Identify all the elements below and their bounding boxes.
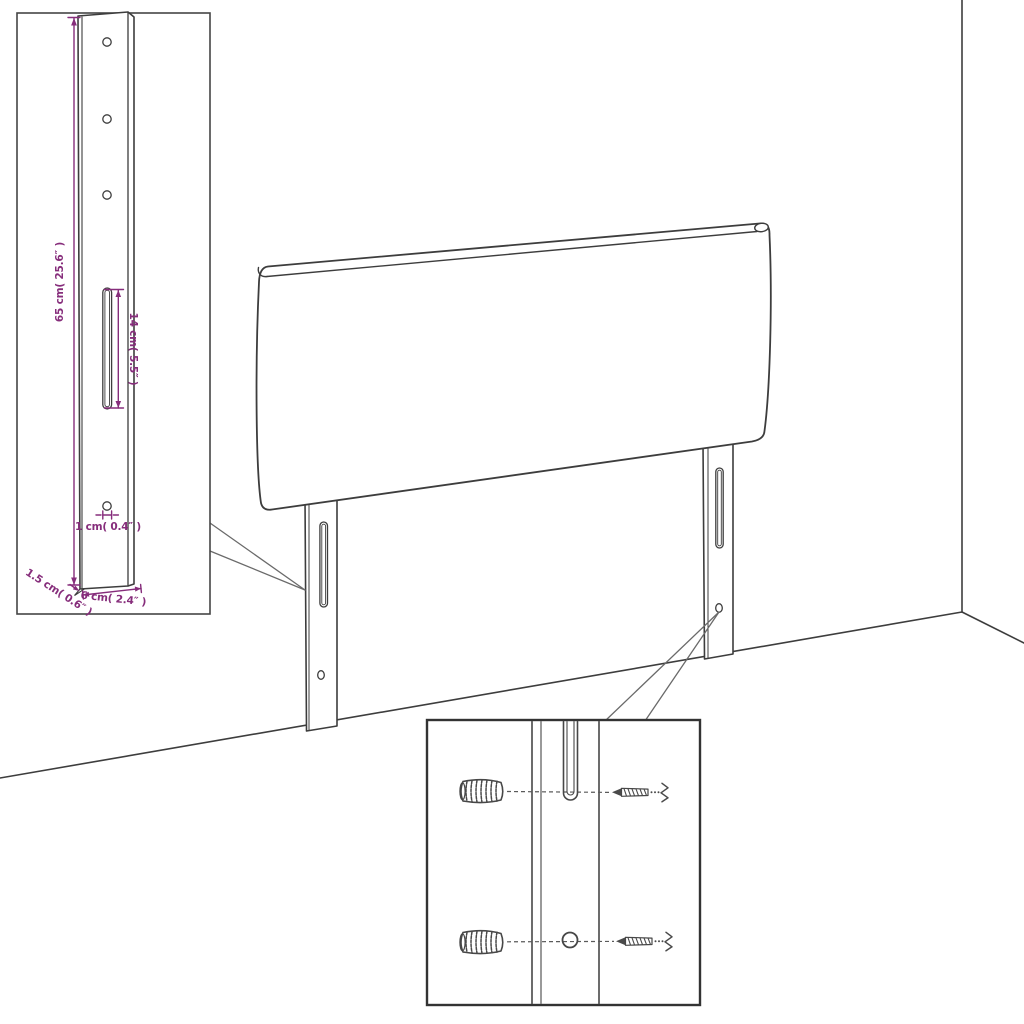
assembly-diagram-page: 65 cm( 25.6″ ) 14 cm( 5.5″ ) 1 cm( 0.4″ … xyxy=(0,0,1024,1024)
detail-hole-top-3 xyxy=(103,191,111,199)
callout-lines-mounting-detail xyxy=(605,612,719,721)
headboard-panel xyxy=(257,223,771,509)
detail-hole-top-2 xyxy=(103,115,111,123)
right-leg-slot xyxy=(716,468,723,548)
dim-slot-label: 14 cm( 5.5″ ) xyxy=(127,312,139,385)
callout-line xyxy=(605,612,719,721)
mounting-detail-inset xyxy=(427,720,700,1005)
dim-height-label: 65 cm( 25.6″ ) xyxy=(54,242,66,322)
dim-hole-label: 1 cm( 0.4″ ) xyxy=(75,521,141,533)
detail-hole-bottom xyxy=(103,502,111,510)
leg-detail-inset: 65 cm( 25.6″ ) 14 cm( 5.5″ ) 1 cm( 0.4″ … xyxy=(17,12,210,618)
detail-hole-top-1 xyxy=(103,38,111,46)
headboard-left-leg xyxy=(305,494,337,731)
callout-lines-leg-detail xyxy=(210,523,305,590)
headboard xyxy=(257,223,771,510)
left-leg-slot xyxy=(320,522,328,607)
callout-line xyxy=(645,612,719,721)
headboard-right-leg xyxy=(703,438,733,659)
floor-line-right xyxy=(962,612,1024,643)
wall-plug-bottom xyxy=(460,931,503,954)
wall-plug-top xyxy=(460,780,503,803)
detail-slot xyxy=(103,288,112,409)
headboard-assembly-diagram: 65 cm( 25.6″ ) 14 cm( 5.5″ ) 1 cm( 0.4″ … xyxy=(0,0,1024,1024)
